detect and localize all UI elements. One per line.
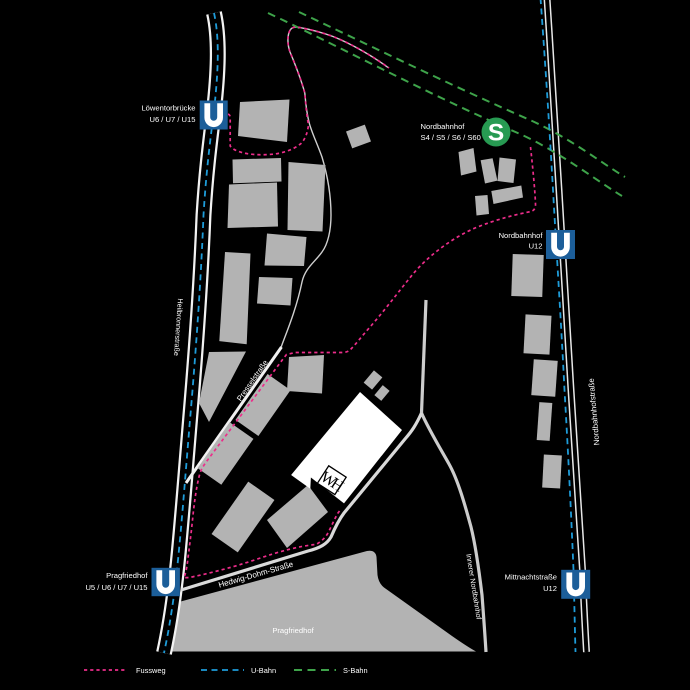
svg-text:U5 / U6 / U7 / U15: U5 / U6 / U7 / U15 bbox=[85, 583, 147, 592]
svg-text:S: S bbox=[488, 120, 504, 147]
svg-text:Pragfriedhof: Pragfriedhof bbox=[272, 626, 314, 635]
svg-text:U6 / U7 / U15: U6 / U7 / U15 bbox=[149, 115, 195, 124]
svg-text:U12: U12 bbox=[543, 584, 557, 593]
svg-text:Fussweg: Fussweg bbox=[136, 666, 166, 675]
svg-text:Mittnachtstraße: Mittnachtstraße bbox=[505, 573, 557, 582]
svg-text:U12: U12 bbox=[529, 242, 543, 251]
svg-text:S4 / S5 / S6 / S60: S4 / S5 / S6 / S60 bbox=[421, 133, 481, 142]
svg-text:Nordbahnhof: Nordbahnhof bbox=[421, 122, 466, 131]
svg-text:U-Bahn: U-Bahn bbox=[251, 666, 276, 675]
svg-text:S-Bahn: S-Bahn bbox=[343, 666, 368, 675]
svg-text:Pragfriedhof: Pragfriedhof bbox=[106, 571, 148, 580]
svg-text:Nordbahnhof: Nordbahnhof bbox=[499, 231, 544, 240]
svg-text:Löwentorbrücke: Löwentorbrücke bbox=[141, 104, 195, 113]
